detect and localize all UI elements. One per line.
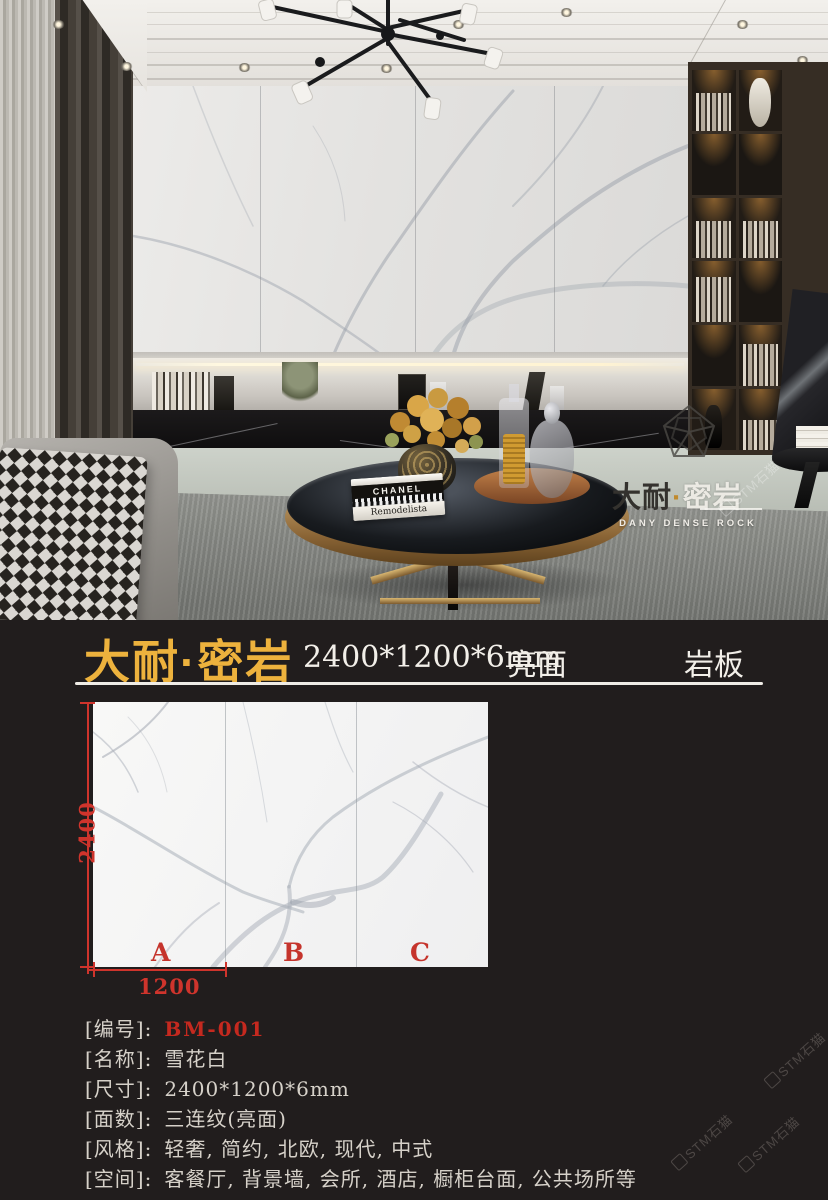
title-underline xyxy=(75,682,763,685)
panel-label-b: B xyxy=(283,938,304,967)
led-strip xyxy=(136,363,684,366)
niche-books xyxy=(152,372,210,410)
dimension-tick xyxy=(225,962,227,977)
white-vase xyxy=(749,78,771,127)
stacked-books xyxy=(796,426,828,448)
product-code: BM-001 xyxy=(164,1017,265,1041)
logo-dot: · xyxy=(672,482,683,514)
spec-row-size: [尺寸]:2400*1200*6mm xyxy=(85,1074,725,1104)
chandelier xyxy=(240,0,520,122)
decanter-liquid xyxy=(503,434,525,484)
showroom-photo: CHANEL Remodelista 大耐·密岩 DANY DENSE ROCK… xyxy=(0,0,828,620)
title-bar: 大耐·密岩 2400*1200*6mm 亮面 岩板 xyxy=(0,620,828,695)
dimension-tick xyxy=(80,702,95,704)
brand-logo-english: DANY DENSE ROCK xyxy=(608,518,768,529)
product-type: 岩板 xyxy=(684,640,744,684)
niche-plant xyxy=(282,362,318,408)
height-dimension-label: 2400 xyxy=(75,801,100,863)
spotlight xyxy=(736,20,749,29)
shelf-column xyxy=(739,70,783,450)
watermark: STM石猫 xyxy=(735,1112,803,1176)
spec-row-faces: [面数]:三连纹(亮面) xyxy=(85,1104,725,1134)
decanter-neck xyxy=(509,384,519,402)
spec-row-space: [空间]:客餐厅, 背景墙, 会所, 酒店, 橱柜台面, 公共场所等 xyxy=(85,1164,725,1194)
product-name: 雪花白 xyxy=(164,1047,227,1071)
spotlight xyxy=(52,20,65,29)
watermark-text: STM石猫 xyxy=(773,1028,828,1081)
carafe-stopper xyxy=(544,402,560,424)
product-styles: 轻奢, 简约, 北欧, 现代, 中式 xyxy=(164,1137,433,1161)
shelf-column xyxy=(692,70,736,450)
wall-veins xyxy=(133,86,688,360)
finish-spec: 亮面 xyxy=(507,640,567,684)
slab-veins xyxy=(93,702,488,967)
spec-row-style: [风格]:轻奢, 简约, 北欧, 现代, 中式 xyxy=(85,1134,725,1164)
width-dimension-line xyxy=(88,969,227,971)
product-faces: 三连纹(亮面) xyxy=(164,1107,287,1131)
brand-logo-icon xyxy=(660,404,718,468)
spotlight xyxy=(560,8,573,17)
coffee-table-top xyxy=(287,458,627,554)
product-sheet: CHANEL Remodelista 大耐·密岩 DANY DENSE ROCK… xyxy=(0,0,828,1200)
spec-row-code: [编号]:BM-001 xyxy=(85,1014,725,1044)
product-spaces: 客餐厅, 背景墙, 会所, 酒店, 橱柜台面, 公共场所等 xyxy=(164,1167,637,1191)
spotlight xyxy=(120,62,133,71)
panel-label-a: A xyxy=(151,938,170,967)
table-leg xyxy=(380,598,540,604)
glass-carafe xyxy=(530,420,574,498)
table-book-stack: CHANEL Remodelista xyxy=(351,473,446,521)
spec-row-name: [名称]:雪花白 xyxy=(85,1044,725,1074)
watermark-text: STM石猫 xyxy=(747,1112,803,1165)
houndstooth-throw xyxy=(0,447,148,620)
slab-sample-image: A B C xyxy=(93,702,488,967)
watermark: STM石猫 xyxy=(761,1028,828,1092)
dimension-tick xyxy=(93,962,95,977)
niche-sculpture xyxy=(214,376,234,410)
panel-label-c: C xyxy=(410,938,430,967)
logo-cn-dark: 大耐 xyxy=(612,482,672,514)
product-size: 2400*1200*6mm xyxy=(164,1077,349,1101)
width-dimension-label: 1200 xyxy=(138,974,200,999)
marble-wall xyxy=(133,86,688,360)
spec-list: [编号]:BM-001 [名称]:雪花白 [尺寸]:2400*1200*6mm … xyxy=(85,1014,725,1194)
